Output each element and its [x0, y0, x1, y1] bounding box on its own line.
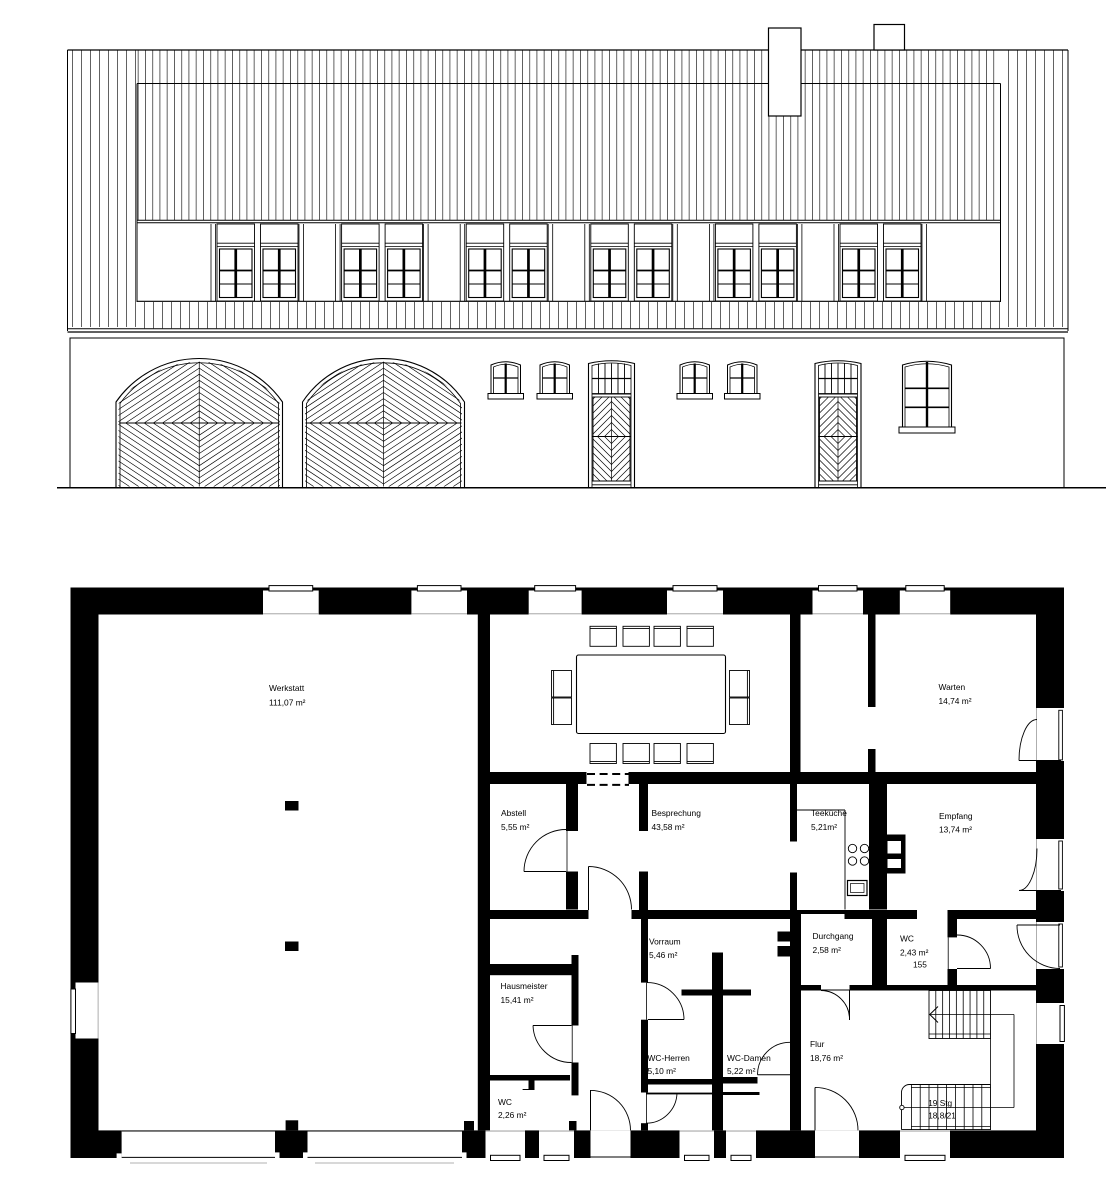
svg-text:155: 155: [913, 960, 927, 970]
svg-text:2,58 m²: 2,58 m²: [813, 945, 842, 955]
svg-text:5,46 m²: 5,46 m²: [649, 950, 678, 960]
svg-text:5,55 m²: 5,55 m²: [501, 822, 530, 832]
svg-text:Durchgang: Durchgang: [813, 931, 854, 941]
svg-text:WC: WC: [900, 934, 914, 944]
svg-text:Werkstatt: Werkstatt: [269, 683, 305, 693]
svg-text:WC-Herren: WC-Herren: [648, 1053, 691, 1063]
svg-text:Teeküche: Teeküche: [811, 808, 847, 818]
svg-text:5,10 m²: 5,10 m²: [648, 1066, 677, 1076]
svg-text:WC-Damen: WC-Damen: [727, 1053, 771, 1063]
svg-text:Abstell: Abstell: [501, 808, 526, 818]
svg-text:5,21m²: 5,21m²: [811, 822, 837, 832]
svg-text:Empfang: Empfang: [939, 811, 973, 821]
svg-text:14,74 m²: 14,74 m²: [939, 696, 972, 706]
svg-text:15,41 m²: 15,41 m²: [501, 995, 534, 1005]
svg-text:2,26 m²: 2,26 m²: [498, 1110, 527, 1120]
svg-text:13,74 m²: 13,74 m²: [939, 825, 972, 835]
svg-text:Flur: Flur: [810, 1039, 825, 1049]
svg-text:Vorraum: Vorraum: [649, 937, 681, 947]
svg-text:2,43 m²: 2,43 m²: [900, 948, 929, 958]
svg-text:Warten: Warten: [939, 682, 966, 692]
svg-text:19 Stg: 19 Stg: [928, 1098, 952, 1108]
svg-text:18,8/21: 18,8/21: [928, 1110, 956, 1120]
svg-text:111,07 m²: 111,07 m²: [269, 698, 306, 708]
svg-text:WC: WC: [498, 1097, 512, 1107]
svg-text:Hausmeister: Hausmeister: [501, 981, 548, 991]
svg-text:Besprechung: Besprechung: [652, 808, 702, 818]
svg-text:5,22 m²: 5,22 m²: [727, 1066, 756, 1076]
svg-text:43,58 m²: 43,58 m²: [652, 822, 685, 832]
svg-text:18,76 m²: 18,76 m²: [810, 1053, 843, 1063]
